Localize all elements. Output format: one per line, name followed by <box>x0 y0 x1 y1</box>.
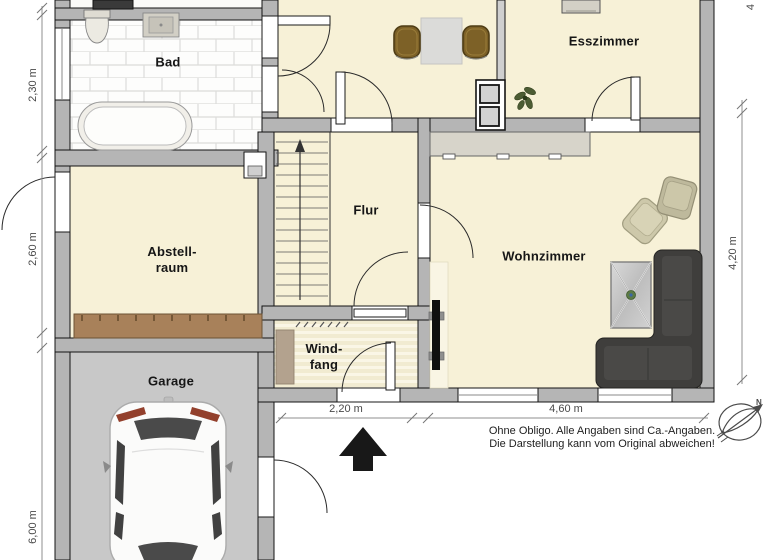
disclaimer: Ohne Obligo. Alle Angaben sind Ca.-Angab… <box>447 425 757 451</box>
dimension-wohnzimmer-bottom: 4,60 m <box>549 403 583 415</box>
floorplan-drawing <box>0 0 768 560</box>
room-label-esszimmer: Esszimmer <box>569 34 639 49</box>
door-leaf-kitchen-top <box>278 16 330 25</box>
room-label-flur: Flur <box>353 203 378 218</box>
sink-icon <box>143 13 179 37</box>
storage-shelf-icon <box>74 314 262 338</box>
room-label-bad: Bad <box>155 55 180 70</box>
dimension-garage-left: 6,00 m <box>27 510 39 544</box>
dining-chair-icon <box>394 26 420 59</box>
room-label-wohnzimmer: Wohnzimmer <box>502 249 585 264</box>
room-label-garage: Garage <box>148 374 194 389</box>
sideboard-icon <box>562 0 600 13</box>
dining-table-icon <box>421 18 462 64</box>
sideboard-icon <box>430 132 590 159</box>
north-letter: N <box>756 398 762 407</box>
room-label-windfang-line1: Wind- <box>306 341 343 357</box>
entrance-arrow-icon <box>339 427 387 471</box>
esszimmer-floor <box>505 0 700 118</box>
dimension-bad-left: 2,30 m <box>27 68 39 102</box>
disclaimer-line2: Die Darstellung kann vom Original abweic… <box>447 438 757 451</box>
tv-icon <box>429 262 448 388</box>
dimension-wohnzimmer-right: 4,20 m <box>727 236 739 270</box>
doormat-icon <box>276 330 294 384</box>
wall-niche <box>244 152 266 178</box>
room-label-abstellraum-line2: raum <box>147 260 196 276</box>
door-leaf-abstellraum <box>55 172 70 232</box>
room-label-abstellraum: Abstell- raum <box>147 244 196 276</box>
door-leaf-esszimmer <box>631 77 640 120</box>
dimension-top-right-partial: 4 <box>745 4 757 10</box>
dimension-abstellraum-left: 2,60 m <box>27 232 39 266</box>
dining-chair-icon <box>463 26 489 59</box>
room-label-windfang-line2: fang <box>306 357 343 373</box>
door-swing-icon <box>2 177 55 230</box>
car-icon <box>103 397 233 560</box>
cutoff-wall-stub <box>93 0 133 9</box>
door-leaf-kitchen-flur <box>336 72 345 124</box>
coffee-table-icon <box>611 262 651 328</box>
bathtub-icon <box>78 102 192 150</box>
door-leaf-garage <box>258 457 274 517</box>
floorplan-canvas: Bad Esszimmer Abstell- raum Flur Wohnzim… <box>0 0 768 560</box>
door-leaf-entrance <box>386 342 395 390</box>
door-leaf-flur-wohnzimmer <box>418 203 430 258</box>
chimney-shaft-icon <box>476 80 505 130</box>
door-swing-icon <box>274 460 327 513</box>
door-leaf-bad <box>262 66 278 112</box>
windfang-floor <box>274 320 418 388</box>
room-label-windfang: Wind- fang <box>306 341 343 373</box>
door-leaf-flur-windfang <box>354 309 406 317</box>
room-label-abstellraum-line1: Abstell- <box>147 244 196 260</box>
dimension-windfang-bottom: 2,20 m <box>329 403 363 415</box>
disclaimer-line1: Ohne Obligo. Alle Angaben sind Ca.-Angab… <box>447 425 757 438</box>
door-opening-kitchen-top <box>262 16 278 58</box>
